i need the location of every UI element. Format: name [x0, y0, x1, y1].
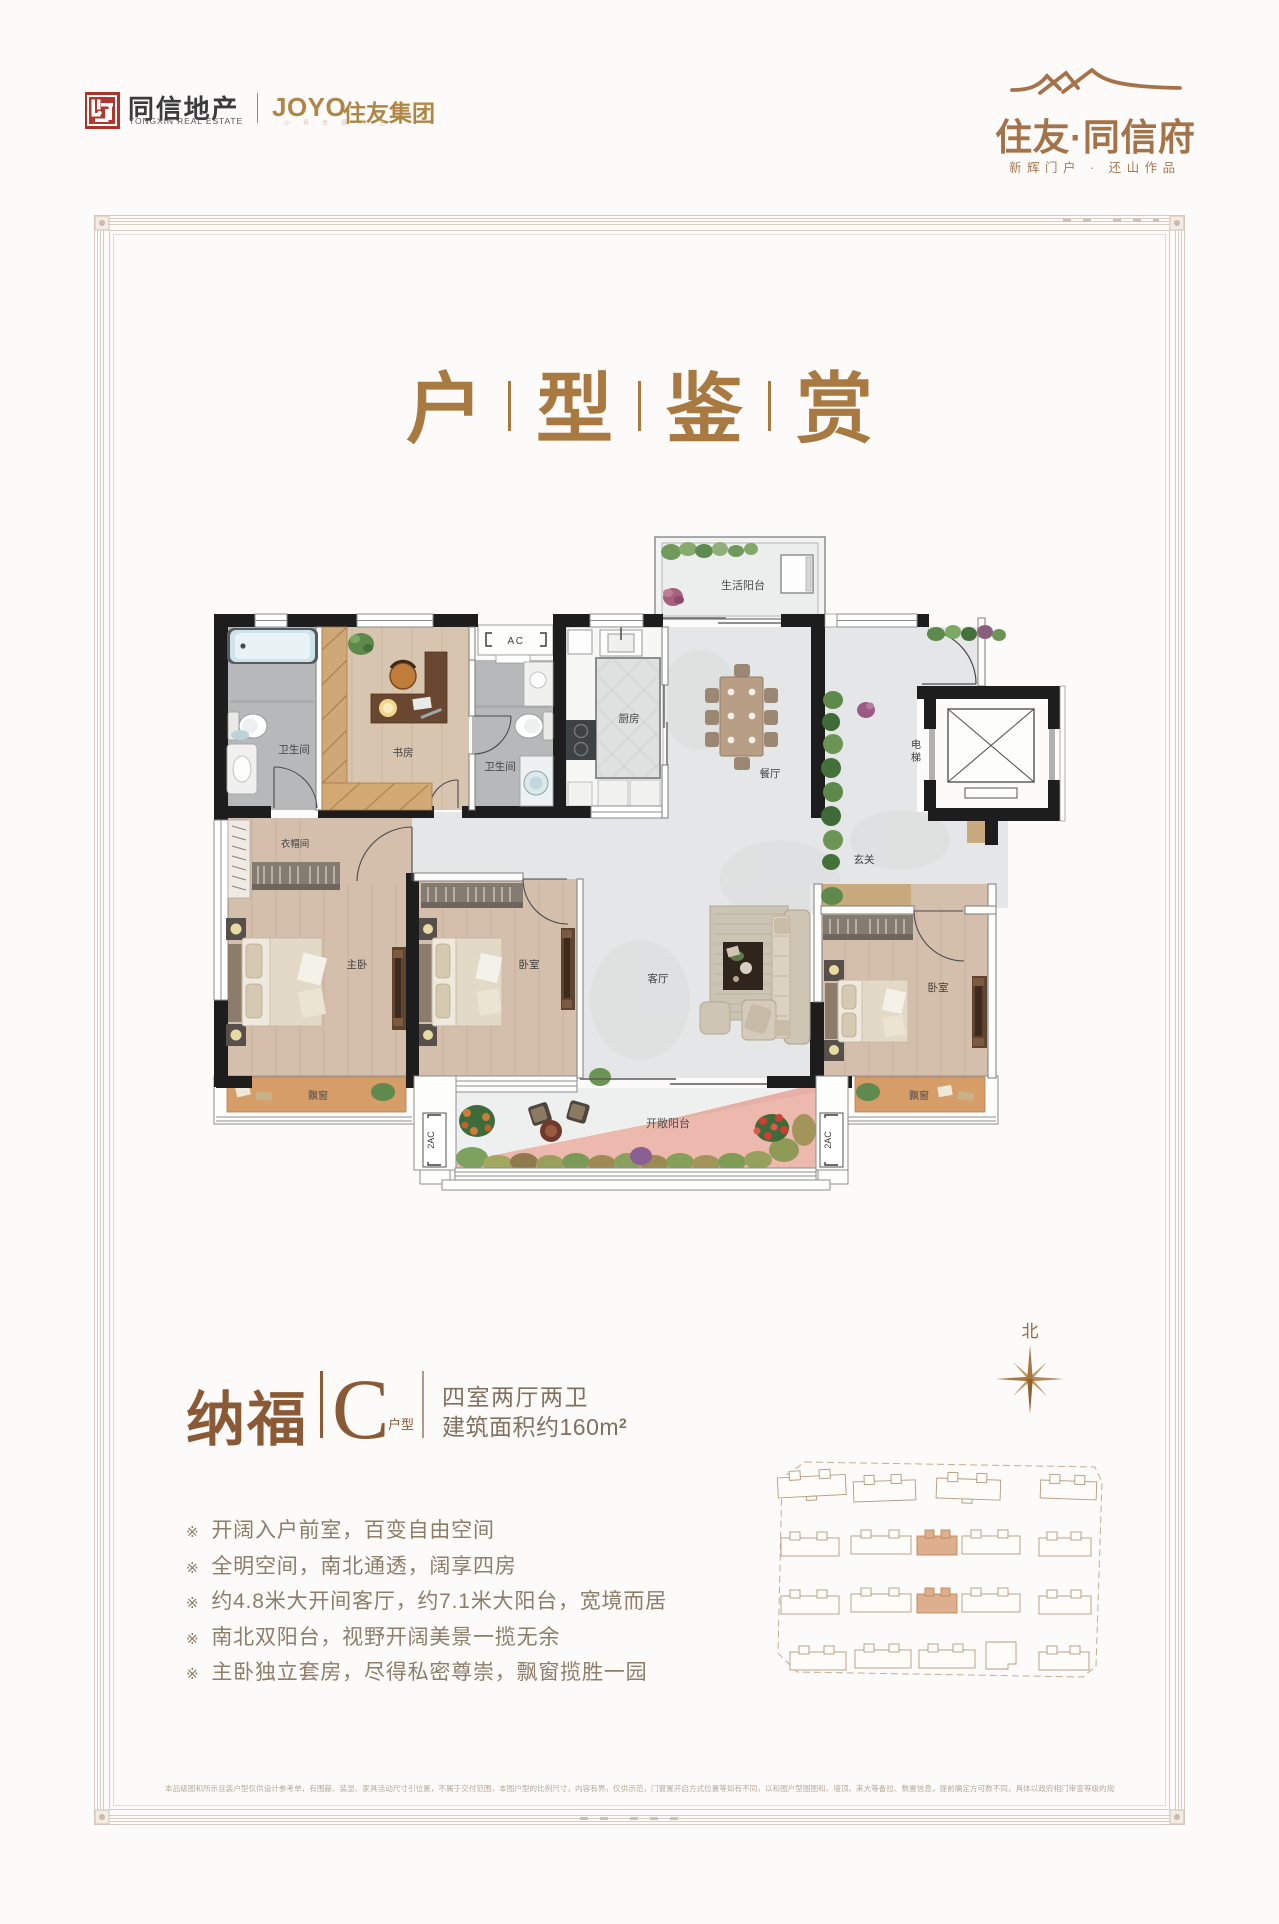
- svg-text:玄关: 玄关: [854, 853, 875, 866]
- svg-text:AC: AC: [508, 636, 525, 647]
- svg-text:开敞阳台: 开敞阳台: [646, 1116, 690, 1130]
- svg-text:卧室: 卧室: [519, 958, 540, 971]
- svg-text:2AC: 2AC: [823, 1131, 833, 1149]
- svg-text:飘窗: 飘窗: [909, 1089, 929, 1102]
- svg-text:卧室: 卧室: [928, 981, 949, 994]
- svg-text:电: 电: [911, 738, 921, 751]
- svg-text:厨房: 厨房: [619, 712, 640, 725]
- svg-text:北: 北: [1022, 1322, 1039, 1341]
- svg-text:梯: 梯: [911, 751, 921, 764]
- svg-text:飘窗: 飘窗: [308, 1089, 328, 1102]
- svg-text:生活阳台: 生活阳台: [721, 578, 765, 592]
- svg-text:主卧: 主卧: [347, 958, 368, 971]
- svg-text:餐厅: 餐厅: [760, 767, 781, 780]
- svg-text:书房: 书房: [393, 746, 414, 759]
- svg-text:衣帽间: 衣帽间: [281, 838, 310, 850]
- svg-text:2AC: 2AC: [426, 1131, 436, 1149]
- svg-text:卫生间: 卫生间: [484, 760, 516, 773]
- svg-text:卫生间: 卫生间: [278, 743, 310, 756]
- svg-text:客厅: 客厅: [648, 972, 669, 985]
